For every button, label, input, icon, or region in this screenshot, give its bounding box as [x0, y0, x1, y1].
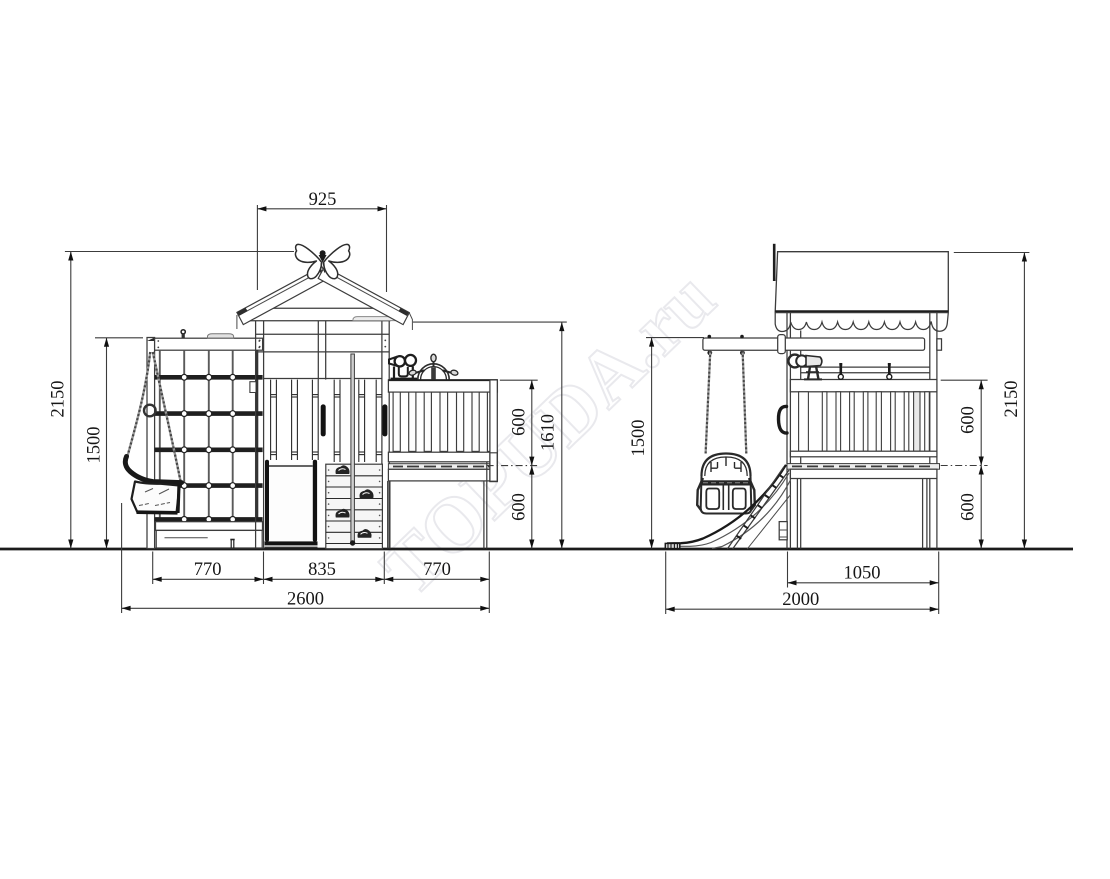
svg-text:925: 925	[309, 190, 337, 210]
svg-text:600: 600	[959, 493, 979, 521]
svg-text:835: 835	[308, 560, 336, 580]
svg-text:600: 600	[510, 493, 530, 521]
svg-text:770: 770	[194, 560, 222, 580]
svg-text:2600: 2600	[287, 590, 324, 610]
svg-text:2150: 2150	[1002, 381, 1022, 418]
svg-text:600: 600	[959, 406, 979, 434]
svg-text:1050: 1050	[844, 564, 881, 584]
svg-text:1610: 1610	[539, 414, 559, 451]
svg-text:2000: 2000	[782, 590, 819, 610]
svg-text:600: 600	[510, 408, 530, 436]
svg-text:1500: 1500	[85, 427, 105, 464]
svg-text:2150: 2150	[49, 381, 69, 418]
svg-text:770: 770	[423, 560, 451, 580]
svg-text:1500: 1500	[629, 420, 649, 457]
